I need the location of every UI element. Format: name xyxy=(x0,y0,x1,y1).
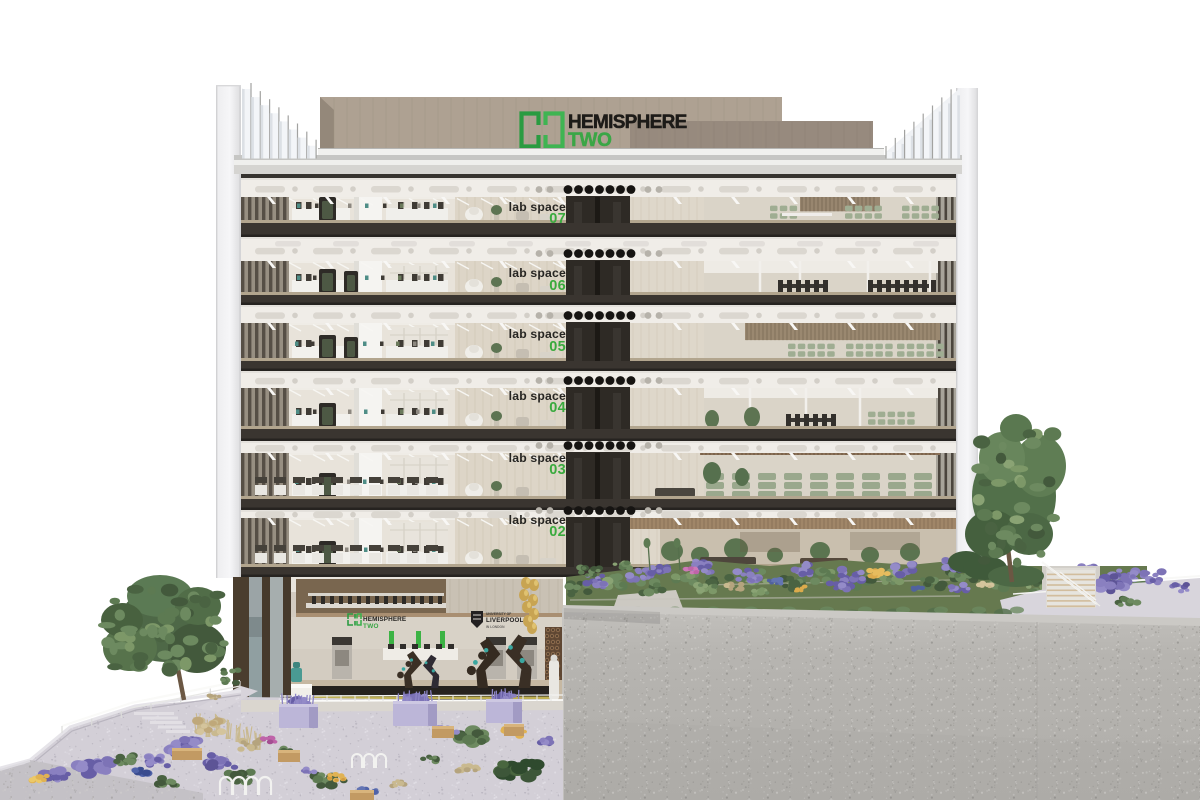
svg-text:06: 06 xyxy=(549,278,566,294)
svg-text:HEMISPHERE: HEMISPHERE xyxy=(363,616,407,623)
svg-text:04: 04 xyxy=(549,400,566,416)
svg-text:UNIVERSITY OF: UNIVERSITY OF xyxy=(486,612,511,616)
svg-text:03: 03 xyxy=(549,462,566,478)
svg-text:05: 05 xyxy=(549,339,566,355)
svg-text:TWO: TWO xyxy=(363,623,379,630)
svg-text:IN LONDON: IN LONDON xyxy=(486,625,505,629)
svg-text:02: 02 xyxy=(549,524,566,540)
svg-text:LIVERPOOL: LIVERPOOL xyxy=(486,617,524,624)
svg-text:07: 07 xyxy=(549,211,566,227)
svg-text:TWO: TWO xyxy=(568,130,612,151)
